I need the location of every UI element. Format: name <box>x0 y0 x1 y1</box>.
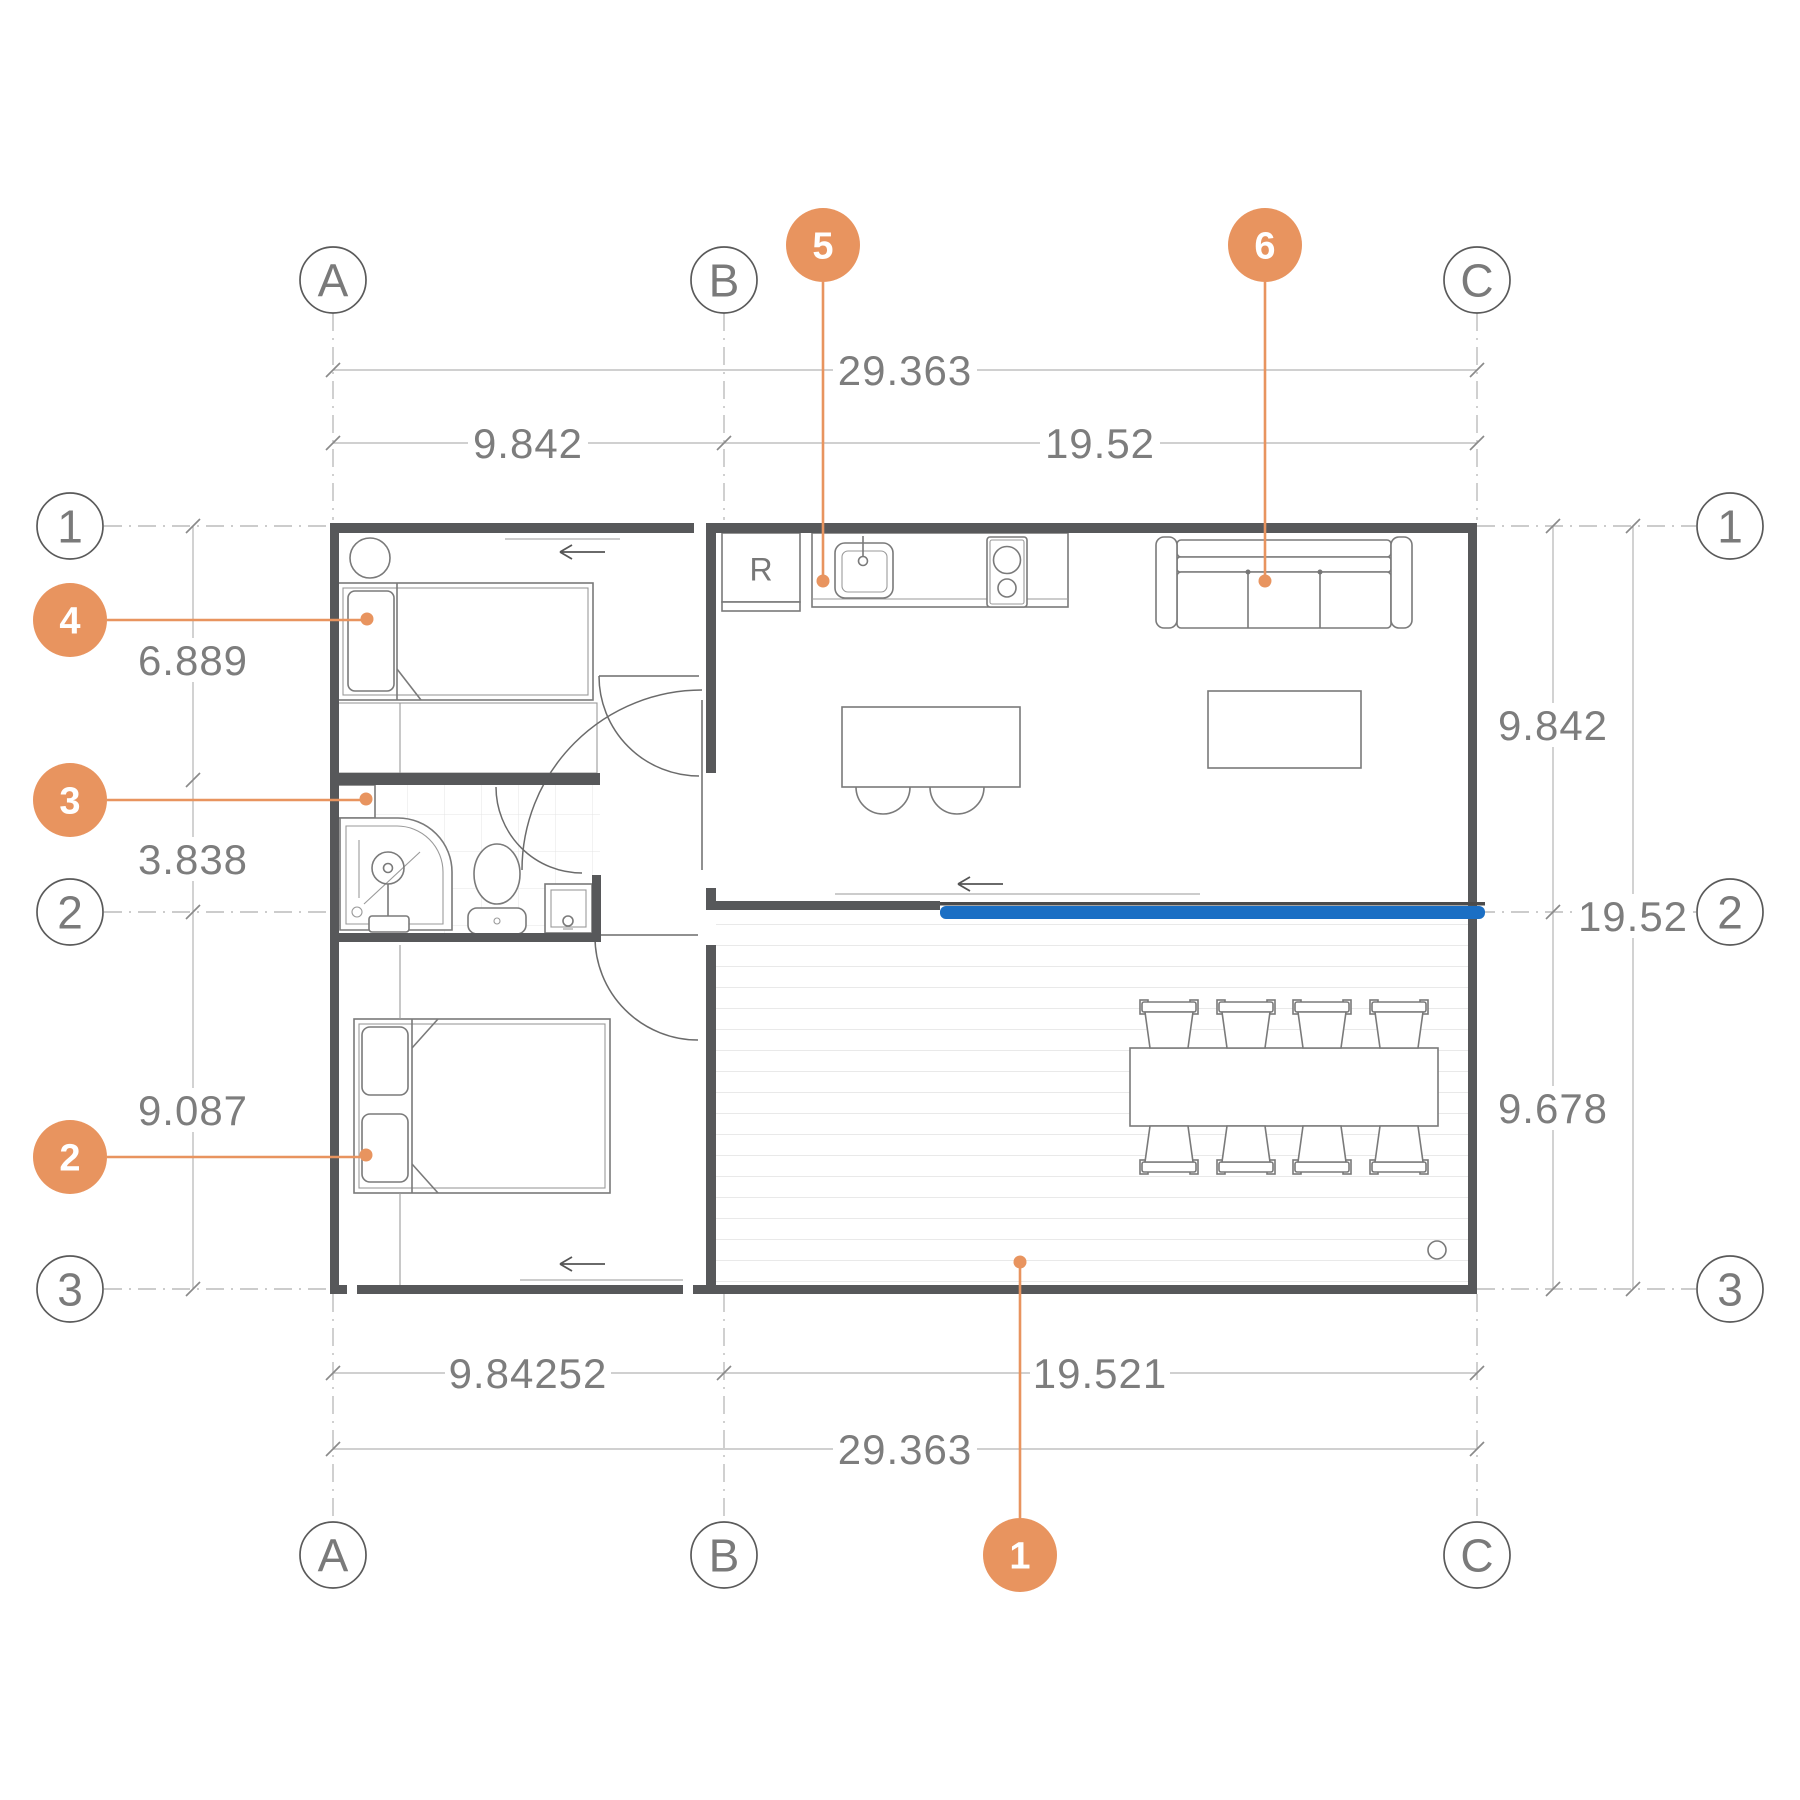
svg-text:C: C <box>1460 255 1493 307</box>
dim-left-2: 3.838 <box>138 836 248 883</box>
dim-right-3: 9.678 <box>1498 1085 1608 1132</box>
sofa <box>1156 537 1412 628</box>
wall-bathroom-right <box>592 875 601 942</box>
refrigerator-label: R <box>749 552 772 588</box>
dim-bottom-total: 29.363 <box>838 1426 972 1473</box>
svg-text:5: 5 <box>812 226 833 268</box>
dim-top-left: 9.842 <box>473 420 583 467</box>
grid-bubble-c-bottom: C <box>1444 1522 1510 1588</box>
svg-text:2: 2 <box>57 887 83 939</box>
deck-chair <box>1217 1126 1275 1174</box>
kitchen-island <box>842 707 1020 787</box>
dim-top-total: 29.363 <box>838 347 972 394</box>
svg-text:C: C <box>1460 1530 1493 1582</box>
sofa-arm <box>1156 537 1177 628</box>
grid-bubble-3-right: 3 <box>1697 1256 1763 1322</box>
wall-top <box>333 523 1477 533</box>
svg-text:2: 2 <box>1717 887 1743 939</box>
grid-bubble-a-bottom: A <box>300 1522 366 1588</box>
kitchen-sink <box>835 536 893 598</box>
dim-left-3: 9.087 <box>138 1087 248 1134</box>
wall-bottom <box>333 1285 1477 1294</box>
deck-chair <box>1370 1000 1428 1048</box>
dim-left-1: 6.889 <box>138 637 248 684</box>
sofa-arm <box>1391 537 1412 628</box>
svg-text:A: A <box>318 255 349 307</box>
door-track <box>940 902 1485 906</box>
deck-chair <box>1293 1000 1351 1048</box>
floor-plan-drawing: R <box>0 0 1800 1800</box>
deck-chair <box>1140 1126 1198 1174</box>
svg-text:A: A <box>318 1530 349 1582</box>
deck-chair <box>1217 1000 1275 1048</box>
pillow <box>348 591 394 691</box>
grid-bubble-2-left: 2 <box>37 879 103 945</box>
grid-bubble-2-right: 2 <box>1697 879 1763 945</box>
pillow <box>362 1027 408 1095</box>
deck-chair <box>1370 1126 1428 1174</box>
svg-text:3: 3 <box>59 781 80 823</box>
shower <box>340 818 452 932</box>
svg-text:1: 1 <box>1009 1536 1030 1578</box>
dining-table <box>1130 1048 1438 1126</box>
grid-bubble-c-top: C <box>1444 247 1510 313</box>
svg-text:B: B <box>709 255 740 307</box>
callout-3-bathroom[interactable]: 3 <box>33 763 373 837</box>
wall-bathroom-bottom <box>333 933 600 942</box>
grid-bubble-b-top: B <box>691 247 757 313</box>
wall-living-deck <box>713 901 940 910</box>
dim-bottom-left: 9.84252 <box>449 1350 608 1397</box>
svg-text:1: 1 <box>57 501 83 553</box>
floor-plan-page: R <box>0 0 1800 1800</box>
grid-bubble-a-top: A <box>300 247 366 313</box>
coffee-table <box>1208 691 1361 768</box>
svg-text:B: B <box>709 1530 740 1582</box>
dim-bottom-right: 19.521 <box>1033 1350 1167 1397</box>
svg-text:6: 6 <box>1254 226 1275 268</box>
svg-text:4: 4 <box>59 601 80 643</box>
building: R <box>330 520 1485 1296</box>
grid-bubble-b-bottom: B <box>691 1522 757 1588</box>
bedroom-1-bed <box>338 583 593 700</box>
grid-bubble-3-left: 3 <box>37 1256 103 1322</box>
dim-top-right: 19.52 <box>1045 420 1155 467</box>
refrigerator: R <box>722 533 800 611</box>
deck-chair <box>1293 1126 1351 1174</box>
svg-text:2: 2 <box>59 1138 80 1180</box>
deck-chair <box>1140 1000 1198 1048</box>
wall-left <box>330 523 339 1294</box>
grid-bubble-1-right: 1 <box>1697 493 1763 559</box>
wall-interior-b-upper <box>706 533 716 773</box>
bathroom-sink <box>545 884 592 933</box>
svg-text:3: 3 <box>1717 1264 1743 1316</box>
grid-bubble-1-left: 1 <box>37 493 103 559</box>
bedroom-2-bed <box>354 1019 610 1193</box>
svg-text:3: 3 <box>57 1264 83 1316</box>
svg-text:1: 1 <box>1717 501 1743 553</box>
sliding-door-highlight[interactable] <box>940 906 1485 919</box>
pillow <box>362 1114 408 1182</box>
dim-right-1: 9.842 <box>1498 702 1608 749</box>
wall-bathroom-top <box>333 773 600 785</box>
callout-1-deck[interactable]: 1 <box>983 1256 1057 1593</box>
dim-right-2: 19.52 <box>1578 893 1688 940</box>
wall-interior-b-lower <box>706 945 716 1285</box>
cooktop <box>987 537 1027 607</box>
